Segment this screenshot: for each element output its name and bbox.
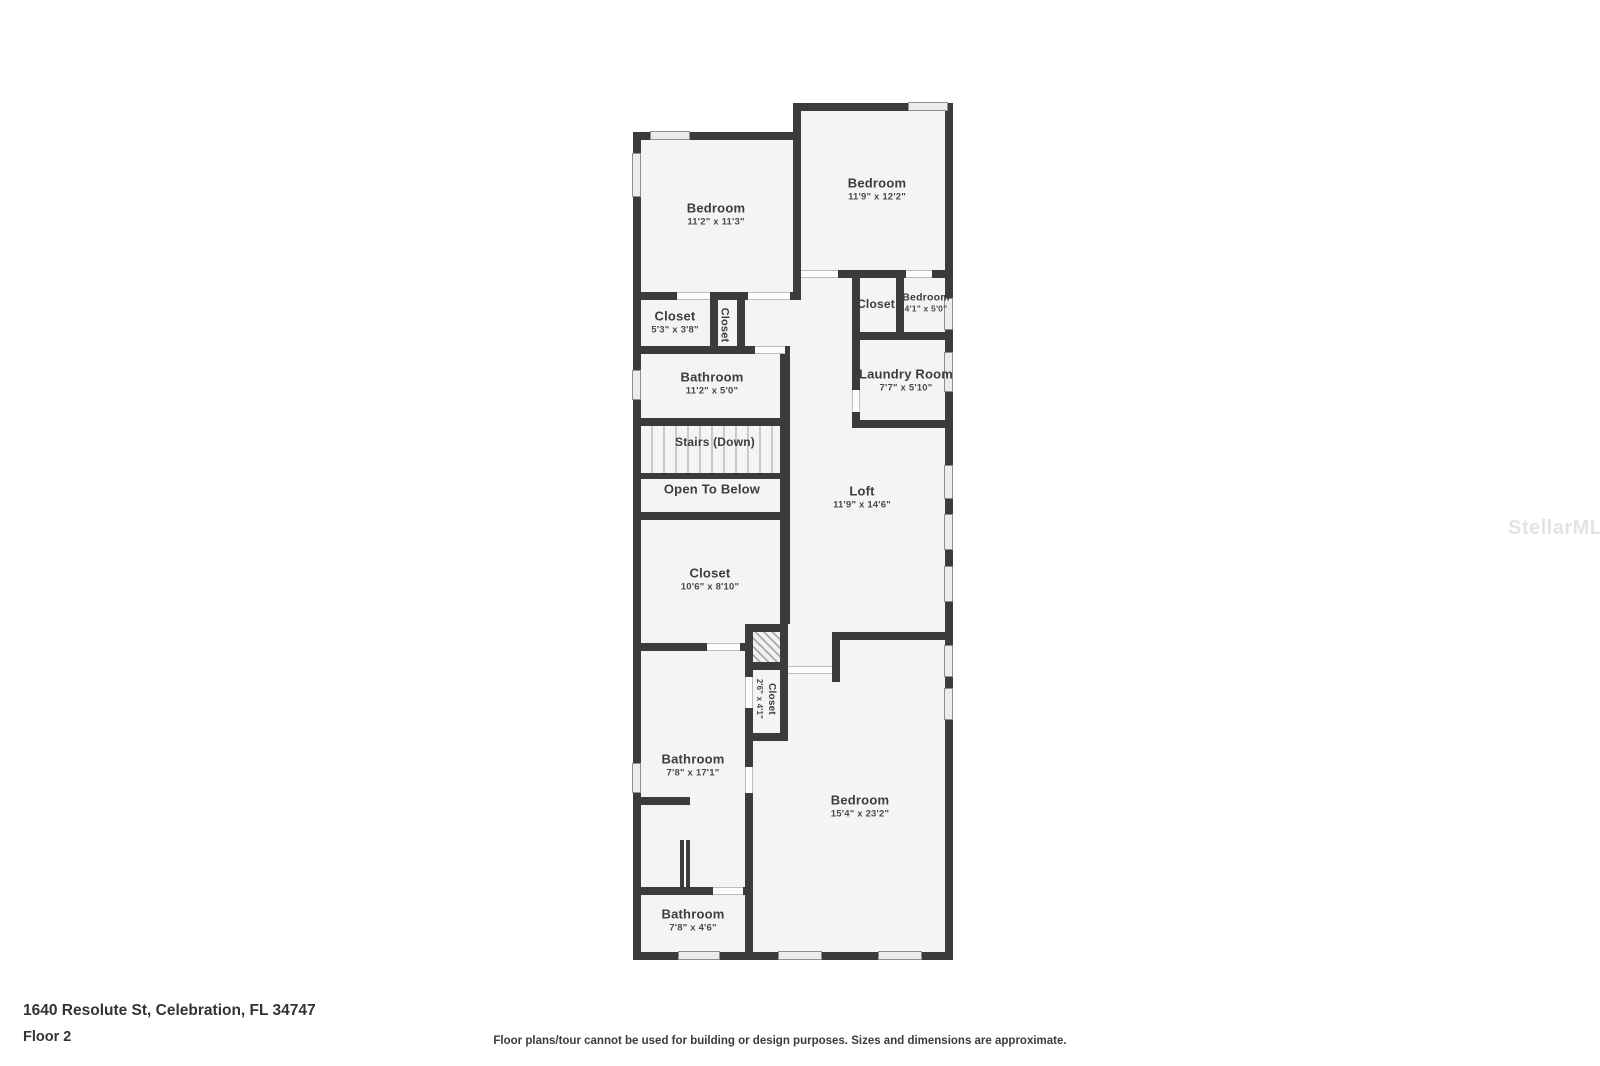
wall-segment	[633, 643, 707, 651]
window	[878, 951, 922, 960]
wall-segment	[641, 797, 690, 805]
door-opening	[707, 643, 740, 651]
window	[944, 514, 953, 550]
door-opening	[755, 346, 785, 354]
window	[944, 645, 953, 677]
room-label-closet-2: Closet	[857, 298, 895, 312]
wall-segment	[932, 270, 953, 278]
wall-segment	[852, 420, 953, 428]
shower-partition	[680, 840, 690, 887]
room-label-bedroom-1: Bedroom 11'2" x 11'3"	[687, 202, 745, 229]
wall-segment	[793, 103, 801, 300]
room-label-bedroom-small: Bedroom 4'1" x 5'0"	[902, 292, 950, 315]
wall-segment	[745, 793, 753, 952]
wall-segment	[633, 346, 755, 354]
wall-segment	[790, 292, 801, 300]
window	[650, 131, 690, 140]
window	[944, 566, 953, 602]
room-label-closet-4: Closet 2'6" x 4'1"	[755, 679, 777, 719]
room-label-loft: Loft 11'9" x 14'6"	[833, 485, 891, 512]
window	[632, 370, 641, 400]
wall-segment	[641, 473, 783, 479]
window	[944, 465, 953, 499]
door-opening	[801, 270, 838, 278]
wall-segment	[743, 887, 750, 895]
wall-segment	[745, 733, 788, 741]
window	[632, 153, 641, 197]
wall-segment	[832, 632, 953, 640]
window	[778, 951, 822, 960]
door-opening	[788, 666, 832, 674]
room-label-bathroom-1: Bathroom 11'2" x 5'0"	[681, 371, 744, 398]
door-opening	[748, 292, 790, 300]
door-opening	[745, 767, 753, 793]
window	[944, 688, 953, 720]
wall-segment	[780, 346, 790, 624]
room-label-stairs: Stairs (Down)	[675, 436, 755, 450]
window	[908, 102, 948, 111]
room-label-laundry: Laundry Room 7'7" x 5'10"	[859, 368, 953, 395]
room-label-open-to-below: Open To Below	[664, 483, 760, 498]
disclaimer-text: Floor plans/tour cannot be used for buil…	[0, 1035, 1560, 1047]
wall-segment	[633, 512, 790, 520]
wall-segment	[633, 132, 641, 960]
wall-segment	[852, 332, 953, 340]
door-opening	[906, 270, 932, 278]
room-label-closet-hall: Closet	[718, 308, 731, 343]
wall-segment	[633, 887, 713, 895]
watermark: StellarMLS	[1508, 517, 1600, 540]
window	[632, 763, 641, 793]
room-label-bathroom-3: Bathroom 7'8" x 4'6"	[662, 908, 725, 935]
room-label-closet-3: Closet 10'6" x 8'10"	[681, 567, 739, 594]
door-opening	[745, 677, 753, 708]
property-address: 1640 Resolute St, Celebration, FL 34747	[23, 1002, 316, 1020]
room-label-bathroom-2: Bathroom 7'8" x 17'1"	[662, 753, 725, 780]
room-label-bedroom-3: Bedroom 15'4" x 23'2"	[831, 794, 889, 821]
room-label-closet-1: Closet 5'3" x 3'8"	[651, 310, 698, 337]
door-opening	[677, 292, 710, 300]
wall-segment	[745, 624, 753, 677]
door-opening	[713, 887, 743, 895]
plan-notch	[633, 95, 793, 132]
room-label-bedroom-2: Bedroom 11'9" x 12'2"	[848, 177, 906, 204]
window	[678, 951, 720, 960]
wall-segment	[737, 292, 745, 354]
floorplan-page: Bedroom 11'2" x 11'3" Bedroom 11'9" x 12…	[0, 0, 1600, 1066]
wall-segment	[832, 632, 840, 682]
wall-segment	[780, 624, 788, 741]
wall-segment	[633, 292, 677, 300]
wall-segment	[633, 418, 790, 426]
hatched-chase	[753, 632, 780, 662]
